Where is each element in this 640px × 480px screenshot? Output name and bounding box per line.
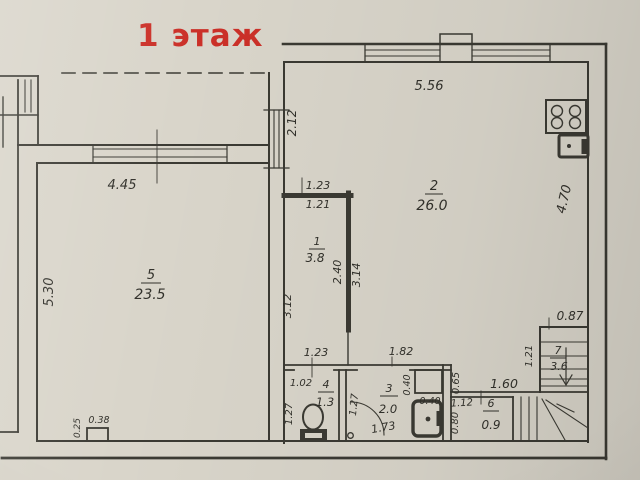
dim-room1-outer-height: 3.14	[350, 263, 363, 288]
room1-area: 3.8	[305, 251, 324, 265]
dim-room2-left: 2.12	[285, 110, 299, 137]
room7-number: 7	[555, 344, 562, 357]
dim-niche-depth: 0.65	[451, 372, 462, 394]
dim-pilaster-height: 0.25	[73, 418, 83, 438]
room5-area: 23.5	[134, 287, 165, 303]
dim-room1-left: 3.12	[281, 294, 294, 319]
room5-number: 5	[147, 268, 155, 283]
dim-niche-width: 1.60	[490, 376, 518, 391]
dim-pilaster-width: 0.38	[88, 415, 109, 426]
page-title: 1 этаж	[137, 18, 263, 54]
dim-heater-size: 0.40	[419, 396, 440, 407]
room1-number: 1	[314, 235, 321, 248]
dim-room5-left: 5.30	[42, 278, 57, 307]
room6-number: 6	[488, 397, 495, 410]
dim-room6-height: 0.80	[450, 412, 461, 434]
room2-number: 2	[430, 179, 438, 194]
dim-stair-height: 1.21	[524, 345, 535, 367]
room3-area: 2.0	[379, 402, 397, 416]
dim-room4-height: 1.27	[284, 402, 295, 425]
room2-area: 26.0	[416, 198, 447, 214]
floor-plan-photo: 1 этаж 5.56 2.12 4.70 2 26.0 4.45 5.30 5…	[0, 0, 640, 480]
room7-area: 3.6	[550, 360, 568, 373]
dim-room6-width: 1.12	[450, 397, 473, 409]
dim-room1-inner-height: 2.40	[331, 260, 344, 285]
room4-number: 4	[323, 378, 330, 391]
dim-stair-width: 0.87	[557, 309, 584, 323]
room3-number: 3	[386, 382, 393, 395]
dim-room4-width: 1.02	[290, 378, 312, 389]
dim-washer-size: 0.40	[402, 374, 413, 395]
dim-passage-left: 1.23	[304, 346, 329, 359]
dim-passage-opening: 1.82	[389, 345, 414, 358]
dim-room1-top-outer: 1.23	[306, 179, 331, 192]
dim-room1-top-inner: 1.21	[306, 198, 331, 211]
room4-area: 1.3	[316, 395, 334, 409]
dim-room5-top: 4.45	[108, 178, 137, 193]
dim-room2-top: 5.56	[415, 79, 444, 94]
room6-area: 0.9	[481, 418, 500, 432]
